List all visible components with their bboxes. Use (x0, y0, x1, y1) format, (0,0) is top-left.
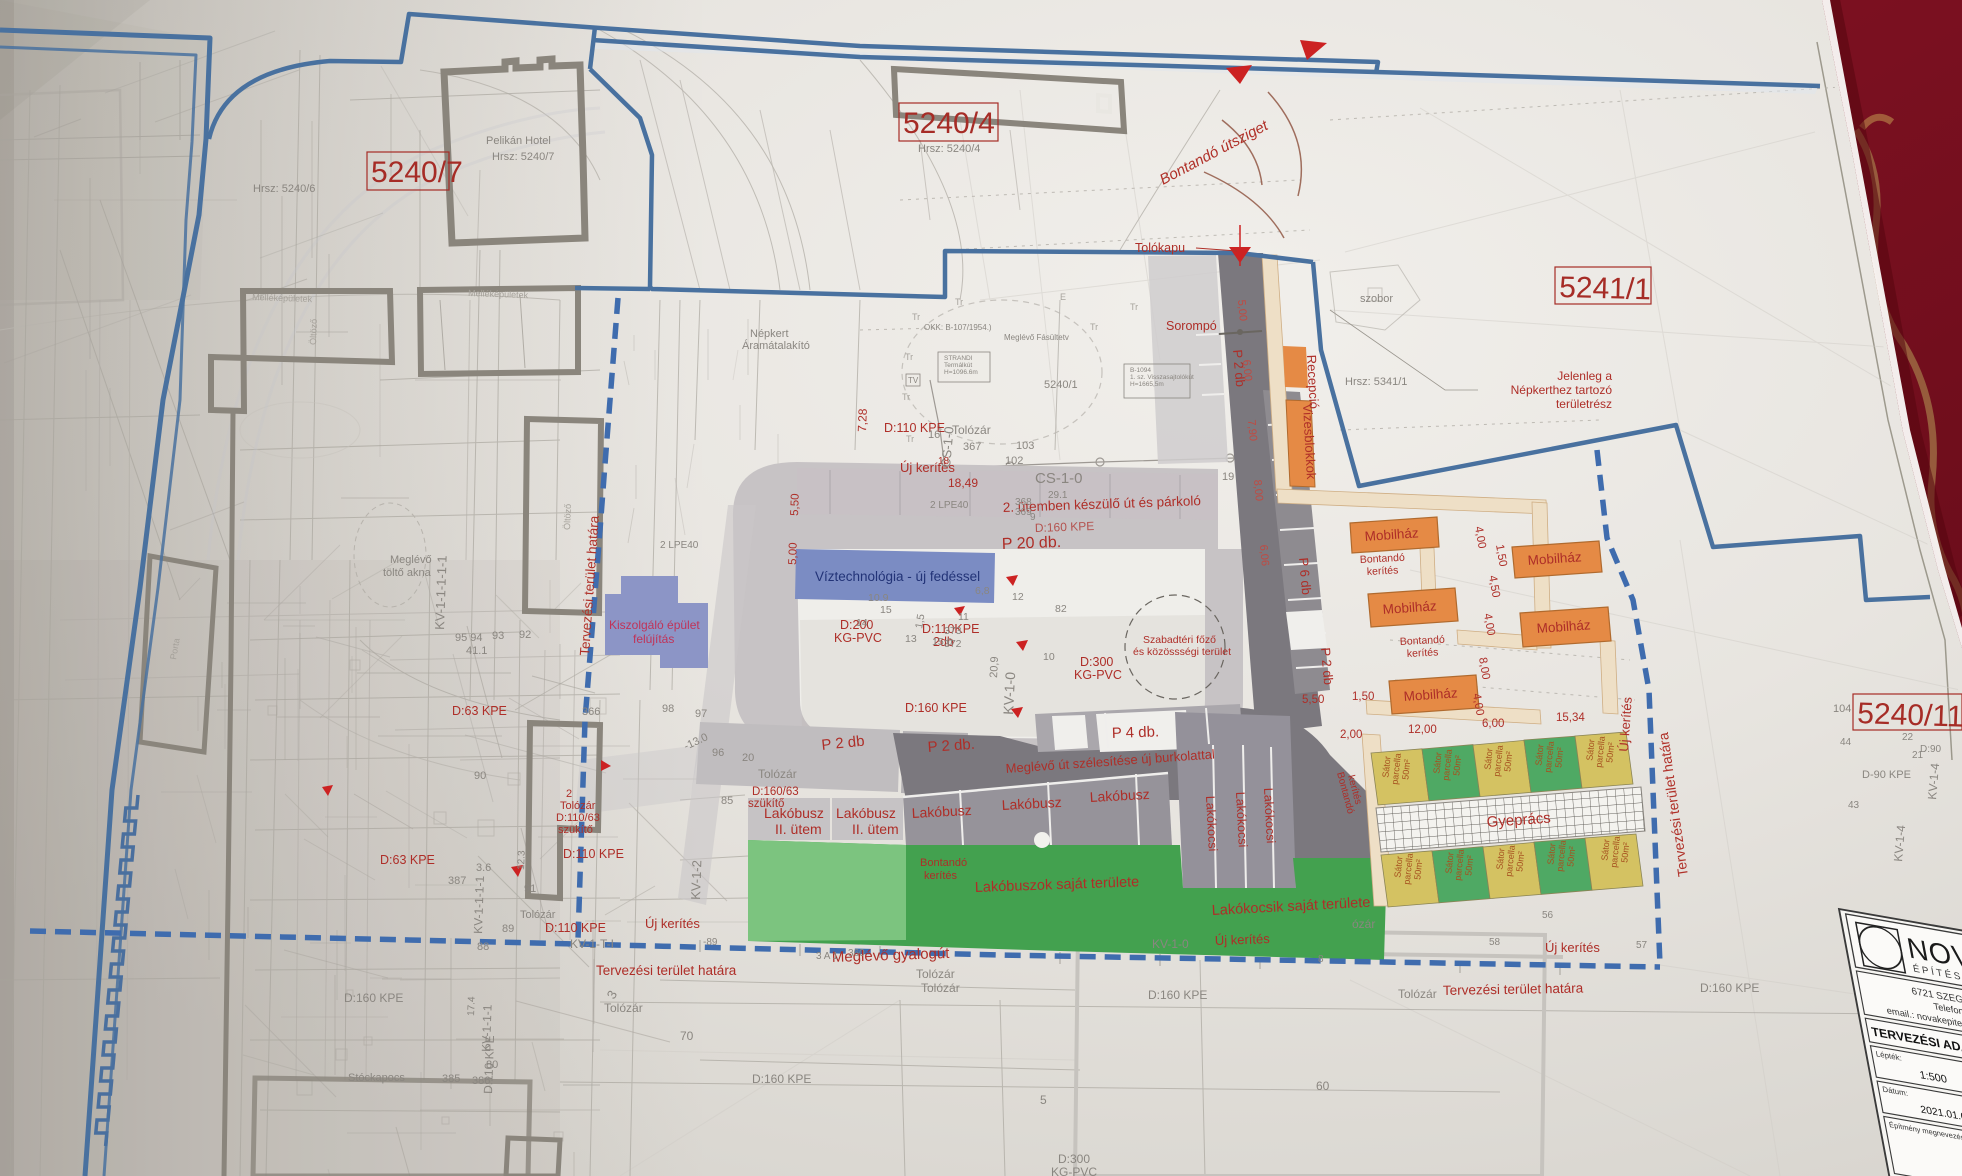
svg-text:93: 93 (492, 630, 504, 642)
svg-text:KV-1-2: KV-1-2 (688, 860, 704, 900)
svg-text:Tolózár: Tolózár (916, 967, 955, 981)
svg-text:91: 91 (524, 883, 536, 895)
svg-text:15,34: 15,34 (1556, 712, 1585, 724)
svg-text:Meglévő: Meglévő (390, 554, 432, 566)
svg-text:KG-PVC: KG-PVC (834, 631, 882, 645)
svg-text:D:110 KPE: D:110 KPE (545, 921, 606, 935)
svg-text:82: 82 (1055, 603, 1067, 615)
svg-text:TV: TV (908, 376, 919, 385)
svg-text:5241/1: 5241/1 (1559, 271, 1652, 306)
svg-text:KV-1-T-I: KV-1-T-I (570, 937, 614, 951)
svg-text:KV-1-1-1-1-1: KV-1-1-1-1-1 (432, 555, 450, 630)
svg-text:18,49: 18,49 (948, 476, 978, 490)
svg-text:5240/4: 5240/4 (903, 107, 995, 140)
svg-text:Lakóbusz: Lakóbusz (1001, 794, 1062, 813)
svg-text:P 20 db.: P 20 db. (1002, 534, 1062, 553)
svg-text:Tr: Tr (912, 312, 920, 322)
svg-text:Tr: Tr (905, 352, 913, 362)
svg-text:Recepció: Recepció (1304, 354, 1322, 409)
svg-text:Sorompó: Sorompó (1166, 319, 1217, 333)
svg-text:43: 43 (1848, 800, 1860, 811)
svg-text:5240/1: 5240/1 (1044, 379, 1078, 391)
svg-text:387: 387 (448, 875, 466, 887)
svg-text:D:160 KPE: D:160 KPE (1148, 988, 1207, 1002)
svg-text:103: 103 (1016, 440, 1034, 452)
svg-text:102: 102 (1005, 455, 1023, 467)
svg-text:5,50: 5,50 (789, 493, 802, 516)
svg-text:1,50: 1,50 (1352, 691, 1374, 703)
svg-text:Tolózár: Tolózár (1398, 987, 1437, 1001)
svg-text:kerítés: kerítés (924, 870, 958, 882)
svg-text:töltő akna: töltő akna (383, 567, 432, 579)
svg-text:P 2 db.: P 2 db. (927, 736, 975, 756)
svg-text:5: 5 (1040, 1093, 1047, 1107)
svg-text:5,50: 5,50 (1302, 694, 1324, 706)
svg-text:2,00: 2,00 (1340, 729, 1362, 741)
svg-text:15: 15 (880, 604, 892, 616)
svg-text:58: 58 (1489, 937, 1501, 948)
svg-text:Lakóbusz: Lakóbusz (1089, 786, 1150, 805)
svg-text:Víztechnológia - új fedéssel: Víztechnológia - új fedéssel (815, 569, 980, 584)
svg-text:Lakókocsi: Lakókocsi (1233, 791, 1250, 847)
svg-text:Tolókapu: Tolókapu (1135, 241, 1185, 255)
svg-text:2 LPE40: 2 LPE40 (660, 540, 699, 551)
svg-text:Áramátalakító: Áramátalakító (742, 339, 810, 352)
svg-text:9: 9 (1030, 512, 1036, 523)
svg-text:Tr: Tr (906, 434, 914, 444)
svg-text:Melléképületek: Melléképületek (468, 288, 529, 300)
svg-text:Bontandó: Bontandó (1360, 552, 1406, 566)
svg-text:Termálkút: Termálkút (944, 362, 972, 369)
svg-text:Tolózár: Tolózár (921, 981, 960, 995)
svg-text:Öltöző: Öltöző (562, 504, 573, 530)
svg-text:20: 20 (742, 752, 754, 764)
svg-text:12.3: 12.3 (516, 850, 528, 870)
svg-text:-89: -89 (703, 937, 718, 948)
svg-text:STRANDI: STRANDI (944, 355, 973, 362)
svg-text:5,00: 5,00 (1235, 299, 1249, 321)
svg-text:104: 104 (1833, 703, 1851, 715)
svg-text:D:63 KPE: D:63 KPE (380, 853, 435, 867)
svg-text:Népkert: Népkert (750, 328, 789, 340)
svg-text:CS-1-0: CS-1-0 (1035, 470, 1083, 487)
svg-text:22: 22 (1902, 732, 1914, 743)
svg-text:Stóckapocs: Stóckapocs (348, 1072, 405, 1084)
svg-text:Tolózár: Tolózár (952, 423, 991, 437)
svg-text:50m²: 50m² (1553, 747, 1565, 768)
svg-text:50m²: 50m² (1502, 751, 1514, 772)
svg-text:Melléképületek: Melléképületek (252, 292, 313, 304)
svg-text:41.1: 41.1 (466, 645, 487, 657)
svg-text:Lakókocsi: Lakókocsi (1261, 787, 1278, 843)
svg-text:88: 88 (477, 941, 489, 953)
svg-text:Tolózár: Tolózár (604, 1001, 643, 1015)
svg-text:Hrsz: 5240/4: Hrsz: 5240/4 (918, 143, 980, 155)
svg-text:385: 385 (442, 1073, 460, 1085)
svg-text:D:110 KPE: D:110 KPE (563, 847, 624, 861)
svg-text:D:160 KPE: D:160 KPE (1700, 981, 1759, 995)
svg-text:Bontandó: Bontandó (1400, 634, 1446, 648)
svg-text:17.4: 17.4 (466, 996, 478, 1016)
svg-text:kerítés: kerítés (1407, 646, 1439, 660)
svg-text:50m²: 50m² (1463, 855, 1475, 876)
svg-text:20,9: 20,9 (988, 656, 1001, 678)
svg-text:8,00: 8,00 (1251, 479, 1265, 501)
svg-text:Pelikán Hotel: Pelikán Hotel (486, 135, 551, 147)
svg-text:Tr: Tr (1090, 322, 1098, 332)
svg-text:Lakókocsi: Lakókocsi (1203, 795, 1220, 851)
svg-text:D:300: D:300 (1058, 1152, 1090, 1166)
svg-text:50m²: 50m² (1565, 846, 1577, 867)
svg-text:85: 85 (721, 795, 733, 807)
svg-text:D:300: D:300 (1080, 655, 1113, 669)
svg-text:II. ütem: II. ütem (775, 821, 822, 837)
svg-text:57: 57 (1636, 940, 1648, 951)
svg-text:KV-1-0: KV-1-0 (1000, 671, 1018, 715)
svg-text:Népkerthez tartozó: Népkerthez tartozó (1511, 383, 1613, 397)
svg-text:KG-PVC: KG-PVC (1074, 668, 1122, 682)
svg-text:E: E (1060, 292, 1066, 302)
svg-text:5240/11: 5240/11 (1857, 697, 1962, 734)
svg-text:D:160/63: D:160/63 (752, 786, 799, 798)
svg-text:2 LPE40: 2 LPE40 (930, 500, 969, 511)
svg-text:21: 21 (1912, 750, 1924, 761)
svg-text:12: 12 (1012, 591, 1024, 603)
svg-text:366: 366 (582, 706, 600, 718)
svg-text:367: 367 (963, 441, 981, 453)
svg-text:OKK: B-107/1954.): OKK: B-107/1954.) (924, 323, 992, 332)
svg-text:szükítő: szükítő (558, 824, 593, 836)
svg-text:Öltöző: Öltöző (308, 319, 319, 345)
svg-text:Új kerítés: Új kerítés (1545, 940, 1600, 955)
svg-text:Meglévő Fásültetv: Meglévő Fásültetv (1004, 333, 1069, 342)
svg-text:D:90: D:90 (1920, 744, 1942, 755)
svg-text:97: 97 (695, 708, 707, 720)
svg-text:14: 14 (856, 617, 868, 629)
svg-text:6,00: 6,00 (1482, 718, 1504, 730)
svg-text:50m²: 50m² (1514, 851, 1526, 872)
svg-text:ózár: ózár (1352, 917, 1375, 931)
svg-text:19: 19 (1222, 471, 1234, 483)
svg-text:Tr: Tr (902, 392, 910, 402)
svg-text:90: 90 (474, 770, 486, 782)
svg-text:Tolózár: Tolózár (520, 909, 556, 921)
svg-text:50m²: 50m² (1400, 759, 1412, 780)
svg-text:D-90 KPE: D-90 KPE (1862, 769, 1911, 781)
svg-text:15.0: 15.0 (932, 636, 953, 648)
svg-text:KV-1-1-1-1: KV-1-1-1-1 (471, 875, 487, 934)
svg-text:1. sz. Visszasajtolókút: 1. sz. Visszasajtolókút (1130, 374, 1194, 381)
svg-text:12,00: 12,00 (1408, 724, 1437, 736)
svg-text:B-1094: B-1094 (1130, 367, 1151, 374)
svg-text:5,00: 5,00 (787, 542, 800, 565)
svg-text:felújítás: felújítás (633, 632, 674, 646)
svg-text:95 94: 95 94 (455, 632, 483, 644)
svg-text:6,8: 6,8 (975, 585, 990, 597)
svg-text:P 4 db.: P 4 db. (1112, 723, 1160, 742)
svg-text:50m²: 50m² (1451, 755, 1463, 776)
svg-text:6,06: 6,06 (1257, 544, 1271, 566)
svg-text:D:110/63: D:110/63 (556, 812, 600, 824)
svg-text:szobor: szobor (1360, 293, 1393, 305)
svg-text:II. ütem: II. ütem (852, 821, 899, 837)
svg-text:D:160 KPE: D:160 KPE (1035, 519, 1095, 535)
svg-text:Tolózár: Tolózár (560, 800, 596, 812)
svg-text:Hrsz: 5341/1: Hrsz: 5341/1 (1345, 376, 1407, 388)
svg-text:7,90: 7,90 (1245, 419, 1259, 441)
svg-text:3.6: 3.6 (476, 862, 491, 874)
svg-text:Jelenleg a: Jelenleg a (1557, 369, 1612, 383)
svg-text:50m²: 50m² (1412, 859, 1424, 880)
svg-text:H=1665,5m: H=1665,5m (1130, 381, 1164, 388)
svg-text:Lakóbusz: Lakóbusz (836, 805, 896, 821)
svg-text:96: 96 (712, 747, 724, 759)
svg-text:92: 92 (519, 629, 531, 641)
svg-text:KV-1-0: KV-1-0 (1152, 937, 1189, 951)
svg-text:Tr: Tr (1130, 302, 1138, 312)
svg-text:8: 8 (1318, 954, 1324, 965)
svg-text:Hrsz: 5240/6: Hrsz: 5240/6 (253, 183, 315, 195)
svg-text:Bontandó: Bontandó (920, 857, 967, 869)
svg-text:Új kerítés: Új kerítés (1215, 931, 1271, 948)
svg-text:70: 70 (680, 1029, 694, 1043)
svg-text:6,00: 6,00 (1240, 359, 1254, 381)
svg-text:Lakóbusz: Lakóbusz (911, 802, 972, 821)
svg-text:Szabadtéri főző: Szabadtéri főző (1143, 634, 1216, 646)
svg-text:1,5: 1,5 (913, 613, 927, 630)
svg-text:kerítés: kerítés (1367, 564, 1399, 578)
svg-text:Tervezési terület határa: Tervezési terület határa (596, 963, 737, 978)
svg-text:5240/7: 5240/7 (371, 156, 463, 189)
svg-text:D:110 KPE: D:110 KPE (481, 1035, 497, 1094)
svg-text:Kiszolgáló épület: Kiszolgáló épület (609, 618, 700, 632)
svg-text:11: 11 (958, 611, 969, 623)
svg-text:10.9: 10.9 (868, 592, 889, 604)
svg-text:Lakóbusz: Lakóbusz (764, 805, 824, 821)
svg-text:50m²: 50m² (1604, 742, 1616, 763)
svg-text:Hrsz: 5240/7: Hrsz: 5240/7 (492, 151, 554, 163)
svg-text:360: 360 (848, 948, 865, 959)
svg-text:2: 2 (566, 788, 572, 800)
svg-text:13: 13 (905, 633, 917, 645)
svg-text:D:160 KPE: D:160 KPE (752, 1072, 811, 1086)
svg-text:D:160 KPE: D:160 KPE (344, 991, 403, 1005)
svg-text:50m²: 50m² (1619, 842, 1631, 863)
svg-text:44: 44 (1840, 737, 1852, 748)
svg-text:Tolózár: Tolózár (758, 767, 797, 781)
svg-text:területrész: területrész (1556, 397, 1612, 411)
svg-text:Új kerítés: Új kerítés (645, 916, 700, 931)
svg-text:98: 98 (662, 703, 674, 715)
svg-text:Tr: Tr (955, 297, 963, 307)
svg-text:D:160 KPE: D:160 KPE (905, 701, 967, 715)
svg-text:56: 56 (1542, 910, 1554, 921)
svg-text:16: 16 (928, 429, 940, 441)
svg-text:Tervezési terület határa: Tervezési terület határa (1443, 981, 1584, 998)
svg-text:10: 10 (1043, 651, 1055, 663)
svg-text:H=1096.6m: H=1096.6m (944, 369, 978, 376)
svg-text:és közössségi terület: és közössségi terület (1133, 646, 1231, 658)
svg-text:KG-PVC: KG-PVC (1051, 1165, 1097, 1176)
svg-text:89: 89 (502, 923, 514, 935)
svg-text:60: 60 (1316, 1079, 1330, 1093)
svg-text:7,28: 7,28 (855, 408, 870, 432)
svg-text:3 A 1: 3 A 1 (816, 951, 839, 962)
svg-text:D:63 KPE: D:63 KPE (452, 704, 507, 718)
